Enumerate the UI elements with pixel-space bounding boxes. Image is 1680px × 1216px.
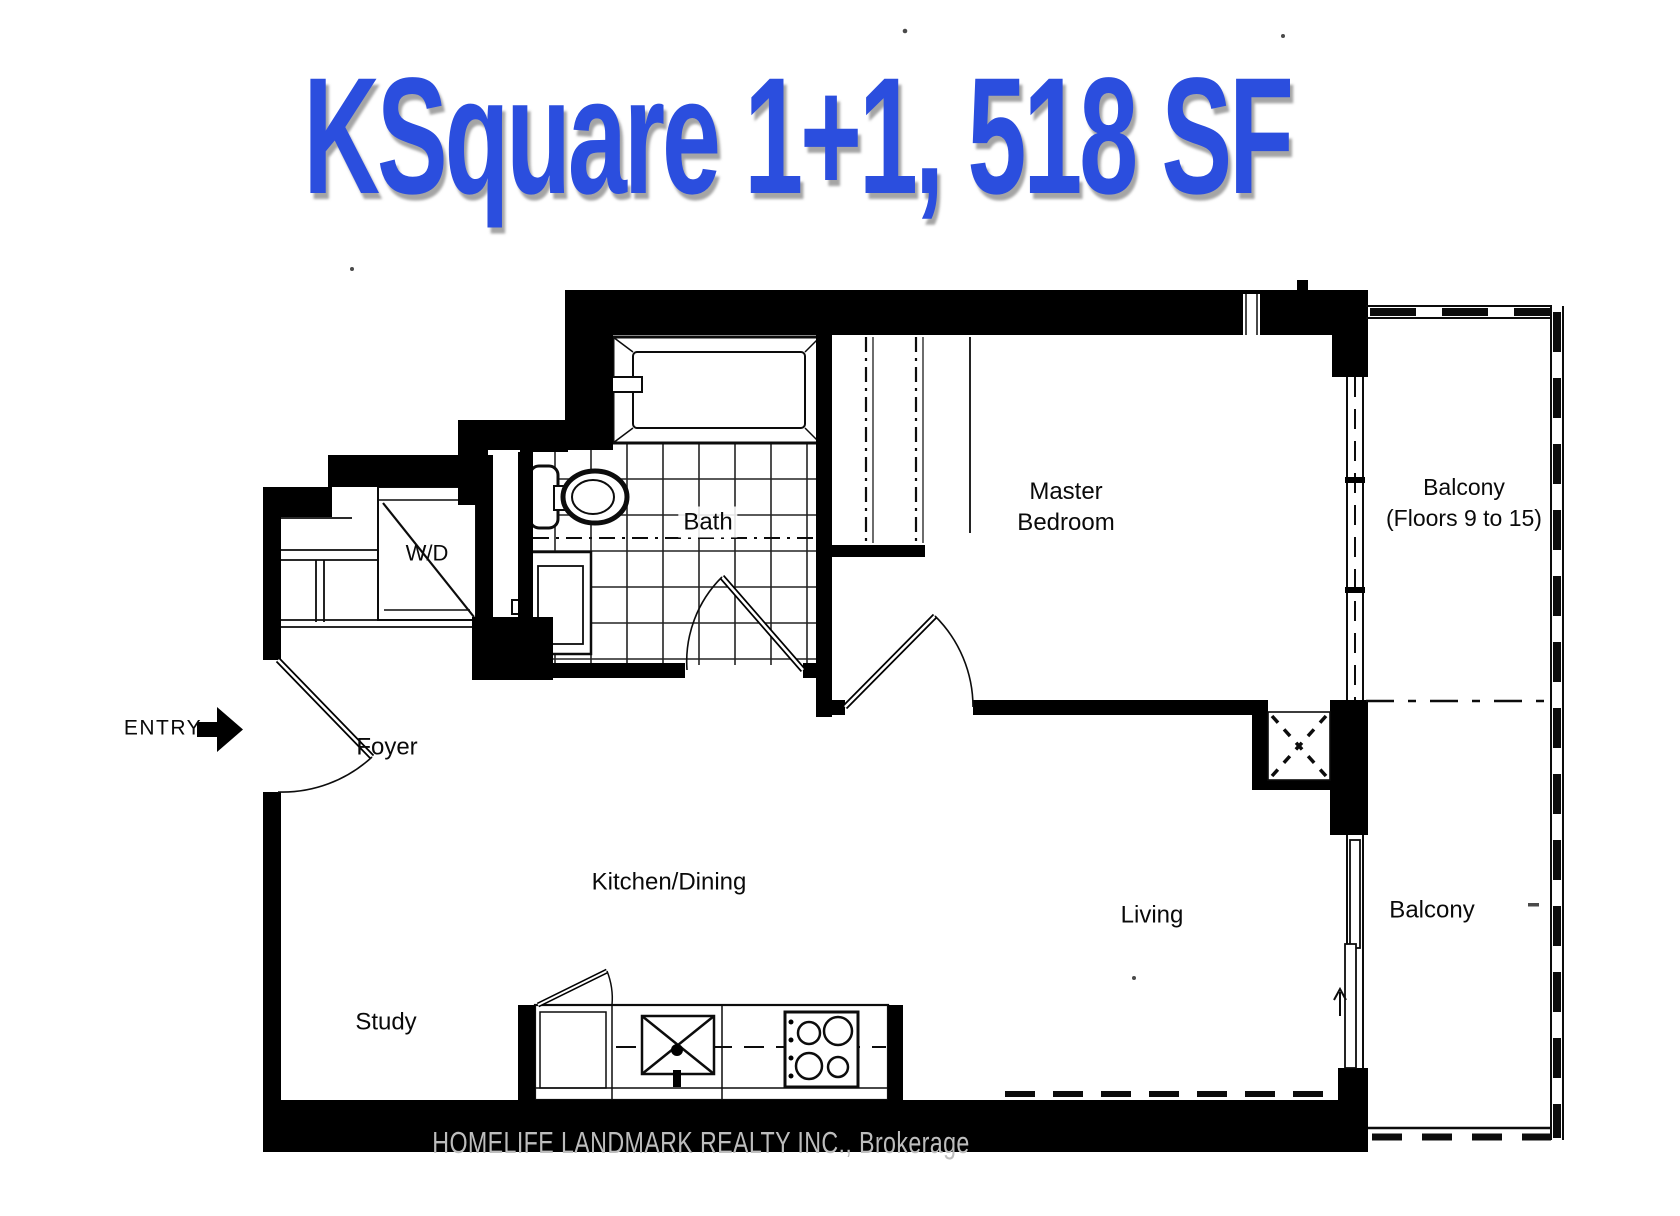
shaft-icon <box>1268 712 1330 780</box>
floor-plan-page: KSquare 1+1, 518 SF <box>0 0 1680 1216</box>
wall-segment <box>803 663 817 678</box>
room-label-bath: Bath <box>678 507 737 538</box>
bedroom-door <box>845 616 973 707</box>
wall-counter-left <box>518 1005 535 1100</box>
wall-counter-right <box>888 1005 903 1100</box>
sink-faucet-icon <box>673 1070 681 1087</box>
wall-segment <box>472 617 553 680</box>
wall-segment <box>1252 780 1332 790</box>
cabinet-door <box>538 971 612 1005</box>
wall-bath-bedroom <box>816 335 832 717</box>
room-label-master-line1: Master <box>1017 476 1114 507</box>
room-label-kitchen-dining: Kitchen/Dining <box>592 867 747 898</box>
room-label-living: Living <box>1121 900 1184 931</box>
wall-segment <box>830 700 845 715</box>
bathtub-icon <box>612 337 820 443</box>
wall-closet-bar <box>832 545 925 557</box>
floor-plan-drawing <box>0 0 1680 1216</box>
room-label-balcony-upper-line1: Balcony <box>1386 472 1542 503</box>
toilet-icon <box>530 466 627 528</box>
room-label-study: Study <box>355 1007 416 1038</box>
wall-segment <box>328 455 493 487</box>
wall-segment <box>1338 1068 1368 1108</box>
room-label-master-line2: Bedroom <box>1017 507 1114 538</box>
tub-faucet-icon <box>612 377 642 392</box>
wall-wd-right <box>476 487 493 622</box>
wall-left-upper <box>263 487 281 660</box>
stove-icon <box>785 1012 858 1087</box>
watermark: HOMELIFE LANDMARK REALTY INC., Brokerage <box>432 1125 969 1161</box>
wall-bath-bottom <box>553 663 685 678</box>
room-label-balcony-upper-line2: (Floors 9 to 15) <box>1386 503 1542 534</box>
bedroom-window <box>1345 377 1365 700</box>
bedroom-closet <box>866 337 970 543</box>
living-window-sliding-door <box>1334 835 1363 1068</box>
room-label-balcony-upper: Balcony (Floors 9 to 15) <box>1386 472 1542 534</box>
wall-segment <box>1332 335 1368 377</box>
wall-segment <box>1330 700 1368 835</box>
room-label-balcony-lower: Balcony <box>1389 895 1474 926</box>
room-label-foyer: Foyer <box>356 732 417 763</box>
wall-segment <box>1252 700 1268 788</box>
entry-label: ENTRY <box>124 713 202 744</box>
kitchen-counter <box>535 971 888 1100</box>
room-label-master-bedroom: Master Bedroom <box>1017 476 1114 538</box>
entry-arrow-icon <box>197 707 243 752</box>
wall-bedroom-bottom <box>973 700 1252 715</box>
wall-left-lower <box>263 792 281 1152</box>
room-label-wd: W/D <box>406 538 449 569</box>
entry-door <box>278 660 372 792</box>
